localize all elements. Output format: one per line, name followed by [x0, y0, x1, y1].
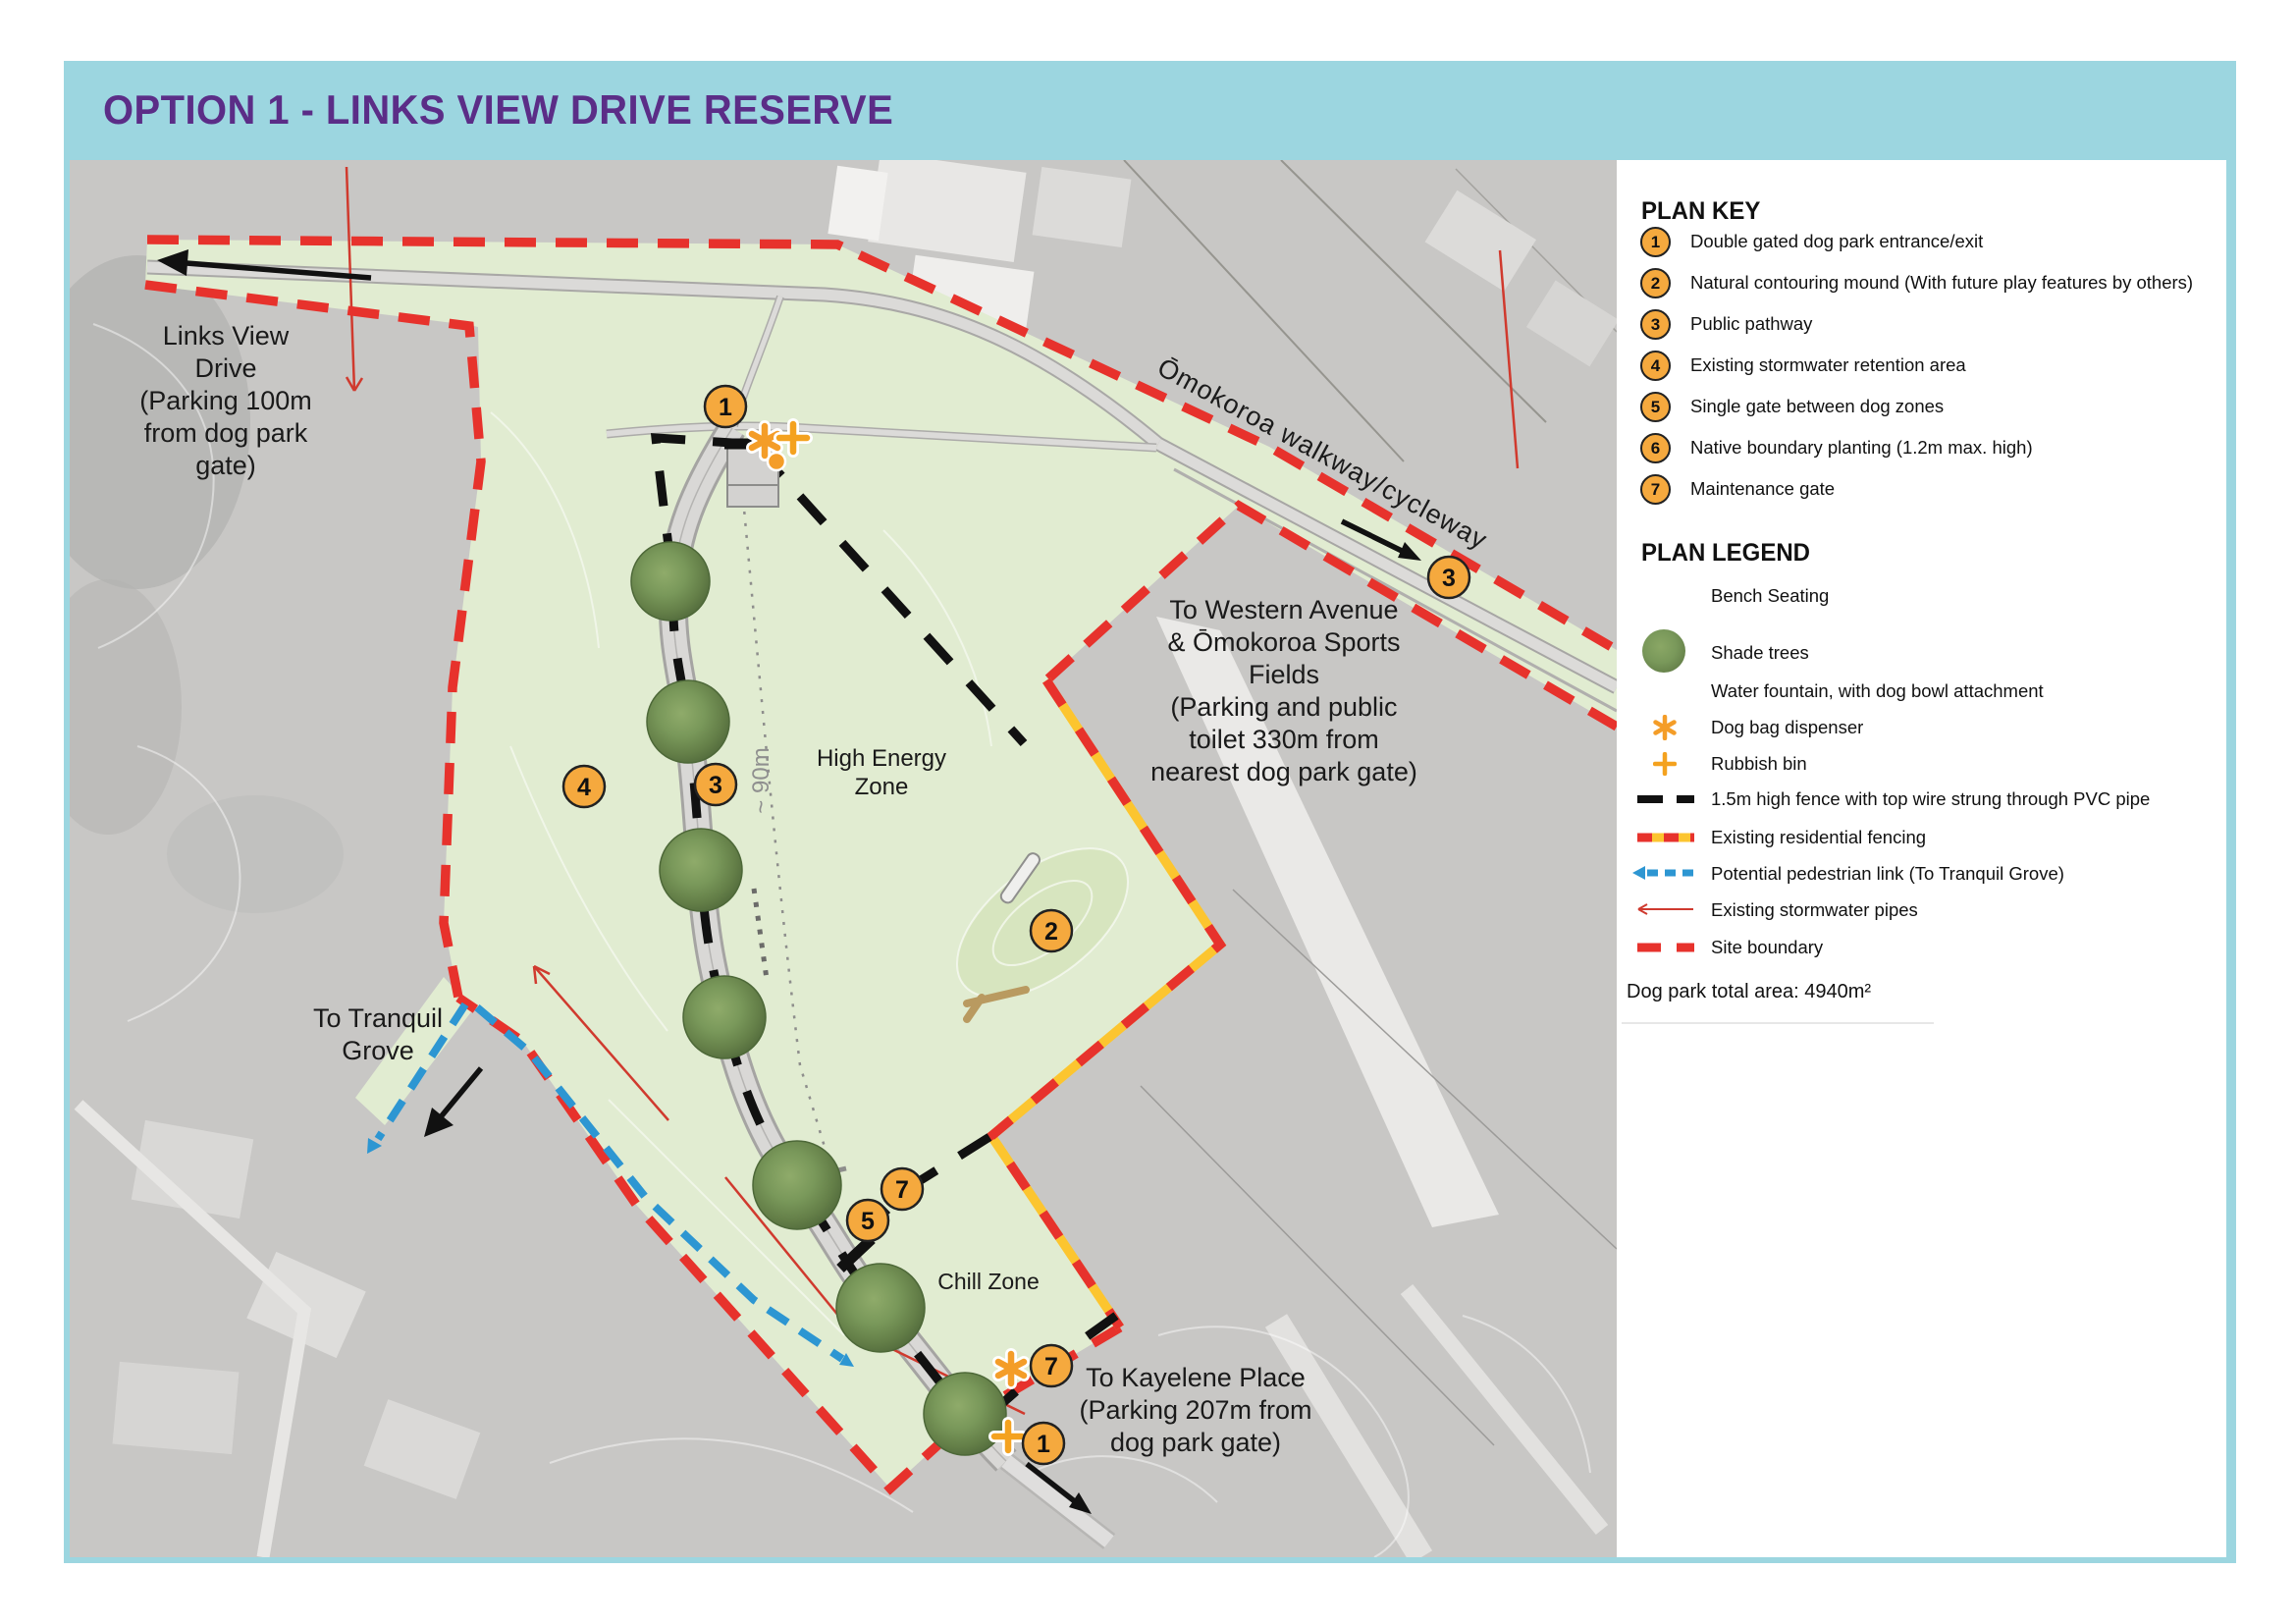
key-item-4: 4 Existing stormwater retention area: [1617, 351, 2220, 384]
marker-walkway: 3: [1428, 557, 1469, 598]
key-badge-2: 2: [1640, 268, 1671, 298]
site-plan-map[interactable]: 1 3 4 2 3 7 5 7 1 Ōmokoroa walkway/cycle…: [70, 160, 1617, 1557]
page-title: OPTION 1 - LINKS VIEW DRIVE RESERVE: [103, 86, 893, 134]
legend-item-bin: Rubbish bin: [1617, 753, 2220, 786]
tranquil-grove-label: To Tranquil Grove: [231, 1002, 525, 1067]
rubbish-bin-swatch: [1653, 752, 1677, 781]
key-item-7: 7 Maintenance gate: [1617, 474, 2220, 508]
key-badge-5: 5: [1640, 392, 1671, 422]
legend-panel: PLAN KEY 1 Double gated dog park entranc…: [1617, 160, 2226, 1557]
svg-text:2: 2: [1044, 918, 1058, 946]
plan-legend-title: PLAN LEGEND: [1641, 539, 1810, 568]
legend-item-boundary: Site boundary: [1617, 937, 2220, 970]
site-boundary-swatch: [1637, 941, 1694, 958]
key-item-1: 1 Double gated dog park entrance/exit: [1617, 227, 2220, 260]
key-badge-3: 3: [1640, 309, 1671, 340]
page: OPTION 1 - LINKS VIEW DRIVE RESERVE: [0, 0, 2296, 1624]
key-badge-1: 1: [1640, 227, 1671, 257]
residential-fencing-swatch: [1637, 831, 1694, 848]
marker-north-entrance: 1: [705, 386, 746, 427]
plan-key-title: PLAN KEY: [1641, 197, 1760, 226]
dog-bag-dispenser-swatch: [1652, 715, 1678, 745]
legend-item-residential: Existing residential fencing: [1617, 827, 2220, 860]
legend-item-dispenser: Dog bag dispenser: [1617, 717, 2220, 750]
marker-zone-gate: 5: [847, 1200, 888, 1241]
fence-swatch: [1637, 792, 1694, 810]
key-badge-4: 4: [1640, 351, 1671, 381]
high-energy-zone-label: High Energy Zone: [754, 744, 1009, 802]
legend-item-pedestrian: Potential pedestrian link (To Tranquil G…: [1617, 863, 2220, 896]
key-badge-7: 7: [1640, 474, 1671, 505]
svg-text:7: 7: [895, 1176, 909, 1204]
total-area-text: Dog park total area: 4940m²: [1627, 981, 1871, 1003]
kayelene-place-label: To Kayelene Place (Parking 207m from dog…: [1039, 1362, 1353, 1459]
svg-text:4: 4: [577, 774, 591, 801]
key-badge-6: 6: [1640, 433, 1671, 463]
links-view-drive-label: Links View Drive (Parking 100m from dog …: [79, 320, 373, 482]
svg-text:3: 3: [1442, 565, 1456, 592]
marker-mound: 2: [1031, 910, 1072, 951]
key-item-5: 5 Single gate between dog zones: [1617, 392, 2220, 425]
svg-text:5: 5: [861, 1208, 875, 1235]
marker-mid-maintenance-gate: 7: [881, 1168, 923, 1210]
water-fountain-icon: [768, 453, 785, 470]
legend-item-fence: 1.5m high fence with top wire strung thr…: [1617, 788, 2220, 822]
svg-text:1: 1: [719, 394, 732, 421]
panel-divider: [1622, 1022, 1934, 1024]
chill-zone-label: Chill Zone: [890, 1268, 1087, 1295]
key-item-3: 3 Public pathway: [1617, 309, 2220, 343]
stormwater-pipes-swatch: [1634, 902, 1695, 921]
marker-stormwater-area: 4: [563, 766, 605, 807]
legend-item-fountain: Water fountain, with dog bowl attachment: [1617, 680, 2220, 714]
legend-item-stormwater: Existing stormwater pipes: [1617, 899, 2220, 933]
key-item-2: 2 Natural contouring mound (With future …: [1617, 268, 2220, 301]
legend-item-bench: Bench Seating: [1617, 571, 2220, 624]
western-avenue-label: To Western Avenue & Ōmokoroa Sports Fiel…: [1127, 594, 1441, 788]
marker-central-pathway: 3: [695, 764, 736, 805]
key-item-6: 6 Native boundary planting (1.2m max. hi…: [1617, 433, 2220, 466]
pedestrian-link-swatch: [1632, 865, 1695, 886]
svg-text:3: 3: [709, 772, 722, 799]
legend-item-trees: Shade trees: [1617, 628, 2220, 681]
